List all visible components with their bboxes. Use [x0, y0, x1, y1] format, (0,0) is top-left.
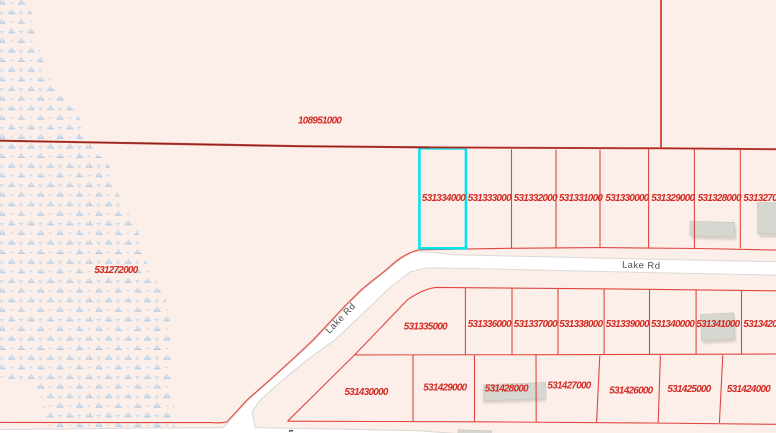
svg-text:531334000: 531334000: [422, 193, 466, 204]
svg-text:531426000: 531426000: [609, 386, 653, 397]
svg-text:531429000: 531429000: [423, 382, 467, 393]
svg-text:531425000: 531425000: [667, 384, 711, 395]
svg-text:531272000: 531272000: [94, 265, 138, 276]
svg-text:Lake Rd: Lake Rd: [622, 260, 661, 271]
svg-text:531342000: 531342000: [743, 319, 776, 330]
svg-text:531424000: 531424000: [727, 384, 771, 395]
svg-text:531336000: 531336000: [468, 319, 512, 330]
svg-text:531337000: 531337000: [514, 319, 558, 330]
svg-text:531341000: 531341000: [696, 319, 740, 330]
svg-text:531331000: 531331000: [559, 193, 603, 204]
svg-text:531428000: 531428000: [485, 384, 529, 395]
svg-text:531339000: 531339000: [606, 319, 650, 330]
svg-text:108951000: 108951000: [298, 115, 342, 126]
svg-text:531327000: 531327000: [743, 193, 776, 204]
svg-text:531330000: 531330000: [605, 193, 649, 204]
svg-text:531328000: 531328000: [698, 193, 742, 204]
svg-text:531332000: 531332000: [514, 193, 558, 204]
svg-text:531329000: 531329000: [651, 193, 695, 204]
svg-text:531430000: 531430000: [345, 387, 389, 398]
svg-text:531427000: 531427000: [547, 381, 591, 392]
svg-text:531338000: 531338000: [559, 319, 603, 330]
svg-text:531333000: 531333000: [468, 193, 512, 204]
svg-text:531335000: 531335000: [404, 322, 448, 333]
svg-text:531340000: 531340000: [651, 319, 695, 330]
